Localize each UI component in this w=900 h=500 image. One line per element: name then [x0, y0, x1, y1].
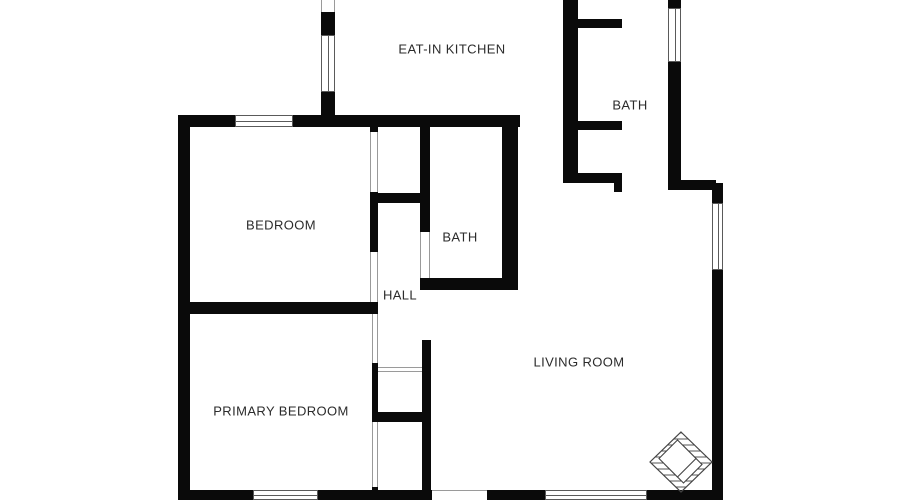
compass-icon — [648, 430, 714, 494]
wall-hall-closet-divider — [372, 412, 430, 422]
wall-kitchen-left-cutoff — [321, 0, 335, 12]
door-opening-bedroom-closet — [370, 132, 378, 192]
window-kitchen-left — [321, 35, 335, 92]
door-opening-entry — [432, 490, 487, 500]
room-label-living-room: LIVING ROOM — [533, 355, 624, 370]
window-bath-upper — [668, 8, 681, 62]
wall-bath-upper-right-top — [668, 0, 681, 8]
room-label-eat-in-kitchen: EAT-IN KITCHEN — [398, 42, 505, 57]
wall-bath-upper-stub-2 — [578, 121, 622, 130]
door-opening-primary-closet — [372, 422, 378, 487]
room-label-bath-upper: BATH — [612, 98, 647, 113]
wall-bath-upper-stub-1 — [578, 19, 622, 28]
wall-right-upper — [712, 183, 723, 203]
wall-bottom-1 — [178, 490, 253, 500]
wall-bath-upper-bottom — [563, 173, 622, 183]
door-opening-primary-bedroom — [372, 314, 378, 363]
wall-kitchen-left-lower — [321, 92, 335, 122]
door-opening-bath-middle — [420, 232, 430, 278]
window-living-bottom — [545, 490, 647, 500]
room-label-bath-middle: BATH — [442, 230, 477, 245]
wall-kitchen-right — [563, 0, 578, 183]
wall-kitchen-left-upper — [321, 12, 335, 35]
wall-bath-upper-bottom-nib — [614, 183, 622, 192]
room-label-bedroom: BEDROOM — [246, 218, 316, 233]
window-primary-bedroom — [253, 490, 318, 500]
window-bedroom-top — [235, 115, 293, 127]
door-opening-bedroom — [370, 252, 378, 302]
wall-bottom-3 — [487, 490, 545, 500]
room-label-hall: HALL — [383, 288, 417, 303]
wall-top-left — [178, 115, 235, 127]
room-label-primary-bedroom: PRIMARY BEDROOM — [213, 404, 349, 419]
wall-hall-right-upper — [420, 122, 430, 232]
floor-plan-canvas: EAT-IN KITCHEN BATH BEDROOM BATH HALL LI… — [0, 0, 900, 500]
wall-bath-upper-right-lower — [668, 62, 681, 190]
window-living-right — [712, 203, 723, 270]
door-opening-hall-closet — [378, 367, 422, 372]
wall-bottom-2 — [318, 490, 432, 500]
wall-bath-middle-right — [502, 123, 518, 290]
wall-bedroom-divider — [178, 302, 378, 314]
wall-living-top — [668, 180, 716, 190]
